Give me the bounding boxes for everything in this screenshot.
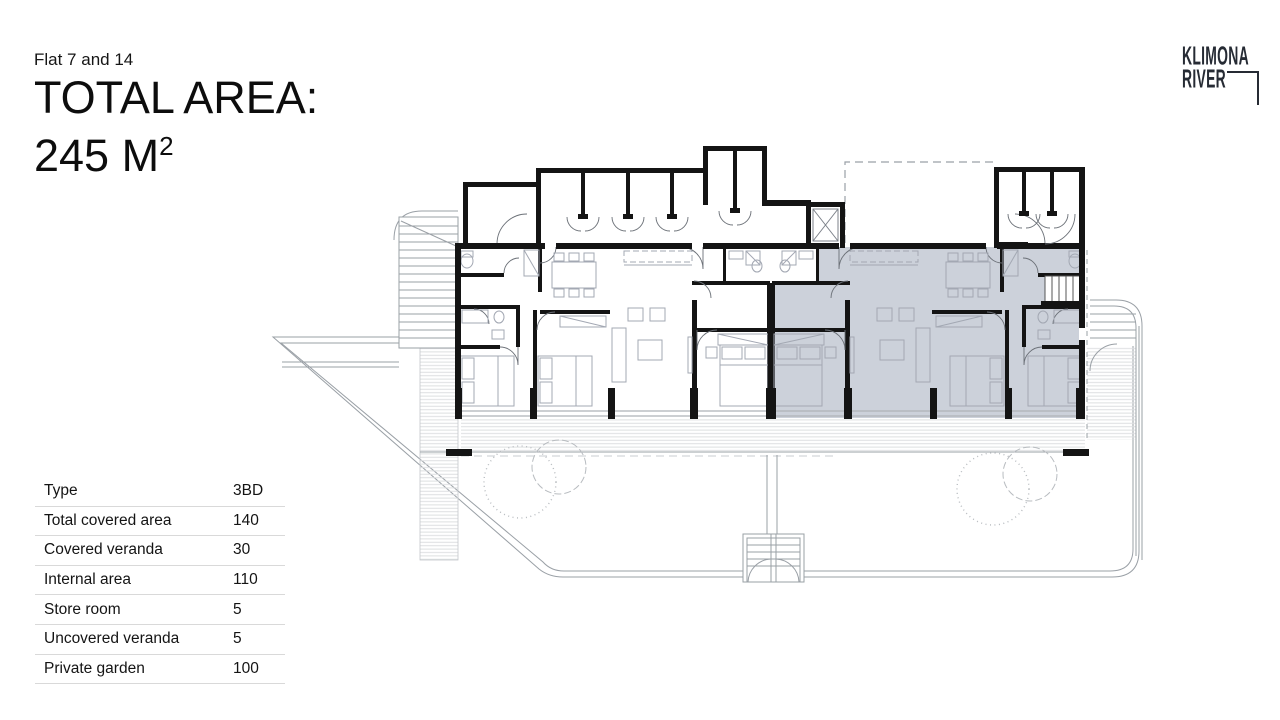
row-label: Covered veranda [35,541,233,559]
title-line-2: 245 M2 [34,122,318,180]
logo-frame-mark [1227,71,1259,105]
page-title: TOTAL AREA: 245 M2 [34,73,318,180]
flat-subtitle: Flat 7 and 14 [34,50,318,70]
row-value: 3BD [233,482,285,500]
row-value: 5 [233,630,285,648]
logo-line-2: RIVER [1182,67,1228,92]
table-row: Type 3BD [35,477,285,507]
veranda-pier [446,449,472,456]
brochure-page: { "header": { "subtitle": "Flat 7 and 14… [0,0,1280,720]
row-label: Uncovered veranda [35,630,233,648]
row-value: 110 [233,571,285,589]
tree-icon [957,447,1057,525]
row-value: 5 [233,601,285,619]
uncovered-terrace-outline [845,162,997,243]
elevator-icon [813,209,838,241]
table-row: Uncovered veranda 5 [35,625,285,655]
table-row: Internal area 110 [35,566,285,596]
row-label: Total covered area [35,512,233,530]
veranda-pier [1063,449,1089,456]
row-label: Private garden [35,660,233,678]
area-value: 245 M [34,130,159,181]
stairs-left [394,211,458,348]
brand-logo: KLIMONA RIVER [1182,44,1262,90]
table-row: Private garden 100 [35,655,285,685]
title-line-1: TOTAL AREA: [34,73,318,122]
table-row: Covered veranda 30 [35,536,285,566]
area-superscript: 2 [159,131,173,161]
header: Flat 7 and 14 TOTAL AREA: 245 M2 [34,50,318,180]
row-label: Internal area [35,571,233,589]
row-value: 140 [233,512,285,530]
area-spec-table: Type 3BD Total covered area 140 Covered … [35,477,285,684]
store-room-stairs [1041,276,1085,306]
row-label: Type [35,482,233,500]
row-value: 30 [233,541,285,559]
stairs-bottom [743,455,804,582]
row-label: Store room [35,601,233,619]
table-row: Total covered area 140 [35,507,285,537]
row-value: 100 [233,660,285,678]
highlighted-unit-overlay [775,247,1079,418]
table-row: Store room 5 [35,595,285,625]
